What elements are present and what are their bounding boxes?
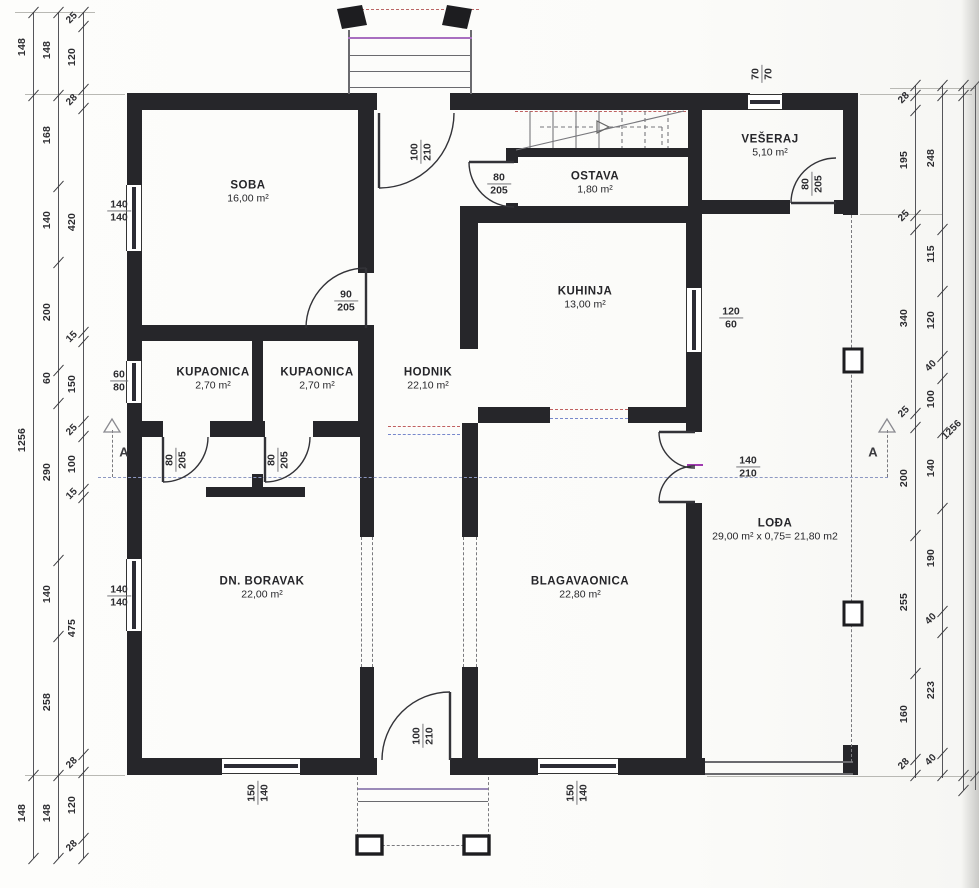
room-name: KUPAONICA (176, 367, 249, 379)
section-arrow (879, 419, 895, 432)
dimension-label: 223 (925, 681, 937, 699)
dimension-label: 140 (925, 459, 937, 477)
opening-size-label: 100210 (408, 140, 433, 164)
dimension-label: 120 (66, 796, 78, 814)
room-name: DN. BORAVAK (220, 576, 305, 588)
opening-size-label: 100210 (410, 724, 435, 748)
room-label: LOĐA29,00 m² x 0,75= 21,80 m2 (712, 518, 838, 543)
stair-diagonal (516, 111, 684, 150)
scan-page-edge (961, 0, 979, 888)
opening-size-label: 140210 (736, 454, 760, 479)
room-label: KUPAONICA2,70 m² (280, 367, 353, 392)
opening-size-label: 140140 (107, 198, 131, 223)
dimension-label: 168 (41, 126, 53, 144)
room-label: OSTAVA1,80 m² (571, 171, 619, 196)
extension-line (25, 775, 125, 776)
opening-size-label: 90205 (334, 288, 358, 313)
loggia-column (844, 349, 862, 372)
dimension-label: 140 (41, 211, 53, 229)
dimension-label: 148 (16, 38, 28, 56)
room-label: HODNIK22,10 m² (404, 367, 452, 392)
opening-height: 60 (719, 318, 743, 331)
room-area: 22,00 m² (220, 589, 305, 601)
room-area: 29,00 m² x 0,75= 21,80 m2 (712, 531, 838, 543)
door-arc (659, 432, 695, 468)
opening-width: 140 (107, 583, 131, 595)
dimension-line (33, 12, 34, 858)
opening-size-label: 80205 (487, 171, 511, 196)
room-label: BLAGAVAONICA22,80 m² (531, 576, 629, 601)
opening-height: 140 (107, 596, 131, 609)
room-area: 13,00 m² (558, 299, 613, 311)
opening-width: 100 (410, 724, 422, 748)
opening-size-label: 80205 (265, 448, 290, 472)
dimension-label: 120 (66, 48, 78, 66)
dimension-label: 195 (898, 151, 910, 169)
dimension-label: 290 (41, 463, 53, 481)
dimension-label: 120 (925, 311, 937, 329)
opening-height: 205 (278, 448, 291, 472)
opening-height: 70 (762, 65, 775, 83)
opening-size-label: 7070 (749, 65, 774, 83)
opening-width: 80 (799, 172, 811, 196)
room-label: KUHINJA13,00 m² (558, 286, 613, 311)
dimension-label: 60 (41, 372, 53, 384)
opening-width: 80 (265, 448, 277, 472)
dimension-label: 100 (66, 455, 78, 473)
door-arc (659, 466, 695, 502)
opening-height: 210 (736, 467, 760, 480)
room-name: HODNIK (404, 367, 452, 379)
opening-width: 140 (736, 454, 760, 466)
room-label: SOBA16,00 m² (227, 180, 268, 205)
room-area: 22,10 m² (404, 380, 452, 392)
room-name: BLAGAVAONICA (531, 576, 629, 588)
floor-plan-canvas: 1481256148148168140200602901402581482512… (0, 0, 979, 888)
dimension-label: 115 (925, 245, 937, 263)
room-area: 1,80 m² (571, 184, 619, 196)
porch-column (337, 5, 367, 29)
opening-height: 205 (334, 301, 358, 314)
dimension-label: 255 (898, 593, 910, 611)
room-label: KUPAONICA2,70 m² (176, 367, 249, 392)
opening-width: 120 (719, 305, 743, 317)
dimension-label: 340 (898, 309, 910, 327)
dimension-label: 200 (898, 469, 910, 487)
extension-line (707, 776, 972, 777)
dimension-label: 248 (925, 149, 937, 167)
dimension-label: 150 (66, 375, 78, 393)
opening-height: 210 (421, 140, 434, 164)
opening-width: 80 (163, 448, 175, 472)
dimension-label: 420 (66, 213, 78, 231)
opening-height: 140 (258, 781, 271, 805)
loggia-column (844, 602, 862, 625)
dimension-label: 475 (66, 619, 78, 637)
room-name: KUHINJA (558, 286, 613, 298)
opening-size-label: 150140 (245, 781, 270, 805)
room-area: 16,00 m² (227, 193, 268, 205)
opening-height: 205 (487, 184, 511, 197)
opening-width: 100 (408, 140, 420, 164)
porch-column (464, 836, 489, 854)
opening-size-label: 140140 (107, 583, 131, 608)
dimension-label: 258 (41, 693, 53, 711)
room-label: VEŠERAJ5,10 m² (741, 134, 798, 159)
drawing-overlay (0, 0, 979, 888)
section-label: A (119, 445, 128, 460)
room-area: 5,10 m² (741, 147, 798, 159)
room-area: 2,70 m² (176, 380, 249, 392)
room-area: 2,70 m² (280, 380, 353, 392)
opening-height: 80 (110, 381, 128, 394)
dimension-label: 200 (41, 303, 53, 321)
opening-size-label: 80205 (799, 172, 824, 196)
opening-height: 210 (423, 724, 436, 748)
dimension-label: 190 (925, 549, 937, 567)
dimension-label: 160 (898, 705, 910, 723)
room-name: VEŠERAJ (741, 134, 798, 146)
dimension-label: 140 (41, 585, 53, 603)
dimension-line (58, 12, 59, 858)
opening-width: 150 (245, 781, 257, 805)
opening-width: 70 (749, 65, 761, 83)
opening-width: 90 (334, 288, 358, 300)
opening-height: 140 (577, 781, 590, 805)
room-label: DN. BORAVAK22,00 m² (220, 576, 305, 601)
room-name: KUPAONICA (280, 367, 353, 379)
dimension-label: 148 (41, 41, 53, 59)
room-name: OSTAVA (571, 171, 619, 183)
opening-width: 80 (487, 171, 511, 183)
dimension-label: 148 (16, 804, 28, 822)
dimension-label: 148 (41, 804, 53, 822)
room-area: 22,80 m² (531, 589, 629, 601)
porch-column (442, 5, 472, 29)
opening-width: 150 (564, 781, 576, 805)
room-name: LOĐA (712, 518, 838, 530)
dimension-label: 100 (925, 390, 937, 408)
section-label: A (868, 445, 877, 460)
opening-width: 140 (107, 198, 131, 210)
opening-size-label: 12060 (719, 305, 743, 330)
section-arrow (104, 419, 120, 432)
opening-width: 60 (110, 368, 128, 380)
opening-height: 140 (107, 211, 131, 224)
opening-height: 205 (176, 448, 189, 472)
opening-height: 205 (812, 172, 825, 196)
room-name: SOBA (227, 180, 268, 192)
opening-size-label: 80205 (163, 448, 188, 472)
dimension-label: 1256 (16, 428, 28, 452)
porch-column (357, 836, 382, 854)
opening-size-label: 150140 (564, 781, 589, 805)
opening-size-label: 6080 (110, 368, 128, 393)
